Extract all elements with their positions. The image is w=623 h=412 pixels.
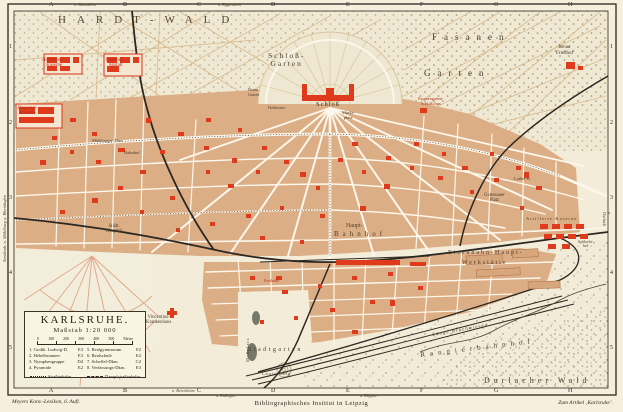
map-title: KARLSRUHE. [29,314,141,326]
label-kadetten-anstalt: Kadetten- Anstalt [106,58,125,69]
tram-line-sample [30,376,46,378]
label-vincentius-krankenhaus: Vincentius- Krankenhaus [146,315,171,326]
label-botanischer-garten: Botan. Garten [248,88,259,97]
grid-letter: E [346,388,350,394]
legend: 1. Großh. Ludwig-D.E3 2. HebelbrunnenE3 … [29,347,141,371]
label-tram-to-muehlburg: Straßenb. n. Mühlburg u. Rheinhafen [3,195,8,262]
grid-number: 2 [610,120,613,126]
label-durlacher-wald: Durlacher Wald [484,377,591,386]
grid-letter: A [49,388,53,394]
scale-bar: 0 100 200 300 400 500 Meter [37,336,133,345]
legend-item: 4. PyramideE2 [29,365,83,371]
map-scale-text: Maßstab 1:20 000 [29,327,141,334]
grid-letter: F [420,388,423,394]
label-hauptbahnhof: Haupt- [346,223,363,230]
grid-number: 1 [9,44,12,50]
grid-number: 3 [610,195,613,201]
label-fasanengarten: Fasanen [432,33,511,43]
label-hoftheater: Hoftheater [268,106,285,110]
label-infanterie-kaserne: Infanterie- Kaserne [44,58,64,69]
grid-number: 5 [610,345,613,351]
grid-letter: C [197,388,201,394]
legend-lines: Straßenbahn Dampfstraßenbahn [29,374,141,379]
label-lutherkirche: Luther-K. [514,177,531,182]
label-neuer-friedhof: Neuer Friedhof [556,45,573,56]
label-eisenbahn-werkstaette: Werkstätte [462,260,508,267]
label-dragoner-kaserne: Dragoner- Kaserne [18,106,38,117]
label-fasanengarten-schloesschen: Fasanengarten- Schlößchen [418,97,444,106]
grid-letter: H [568,388,572,394]
label-to-mannheim: n. Mannheim [74,3,96,8]
legend-steam-tram: Dampfstraßenbahn [87,374,140,379]
karlsruhe-map: A B C D E F G H A B C D E F G H 1 2 3 4 … [0,0,623,412]
steam-tram-line-sample [87,376,103,378]
legend-item: 8. Verfassungs-Dkm.E3 [87,365,141,371]
label-festhalle: Festhalle [264,279,279,284]
label-lauterberg: Lauterberg [262,372,291,377]
grid-number: 4 [610,270,613,276]
label-schlachthof: Schlacht- hof [578,240,593,249]
label-staedtisches-hospital: Städt. Hospital [106,224,122,235]
label-fasanengarten: Garten [424,69,491,79]
grid-letter: C [197,2,201,8]
grid-letter: E [346,2,350,8]
grid-letter: H [568,2,572,8]
label-to-ettlingen: n. Ettlingen [216,394,236,399]
grid-letter: D [271,2,275,8]
grid-number: 2 [9,120,12,126]
label-eisenbahn-werkstaette: Eisenbahn-Haupt- [448,250,524,257]
label-gottesauer-platz: Gottesauer Platz [484,193,505,204]
label-to-rueppurr: n. Rüppurr [360,394,378,399]
grid-number: 1 [610,44,613,50]
caption-article-reference: Zum Artikel ‚Karlsruhe’. [558,400,613,406]
label-hardtwald: HARDT-WALD [58,14,240,26]
grid-number: 5 [9,345,12,351]
grid-letter: G [494,2,498,8]
grid-number: 4 [9,270,12,276]
grid-letter: B [123,388,127,394]
caption-publisher: Bibliographisches Institut in Leipzig [0,400,623,407]
label-to-durlach: n. Durlach [602,212,611,226]
label-muehlburger-thor: Mühlburger Thor [92,139,122,144]
grid-letter: D [271,388,275,394]
grid-letter: G [494,388,498,394]
legend-tram: Straßenbahn [30,374,71,379]
label-to-beiertheim: n. Beiertheim [172,389,195,394]
label-bahnhof-west: Bahnhof [124,150,140,155]
label-artillerie-kaserne: Artillerie-Kaserne [526,216,577,221]
label-schlossgarten: Schloß- Garten [268,52,305,69]
label-hauptbahnhof: Bahnhof [334,231,386,239]
grid-letter: F [420,2,423,8]
grid-letter: A [49,2,53,8]
grid-letter: B [123,2,127,8]
label-marktplatz: Markt- platz [342,111,355,121]
label-to-eggenstein: n. Eggenstein [218,3,241,8]
grid-number: 3 [9,195,12,201]
label-stadtgarten: Stadtgarten [248,347,303,354]
title-cartouche: KARLSRUHE. Maßstab 1:20 000 0 100 200 30… [24,311,146,378]
label-schloss: Schloß [316,101,340,108]
